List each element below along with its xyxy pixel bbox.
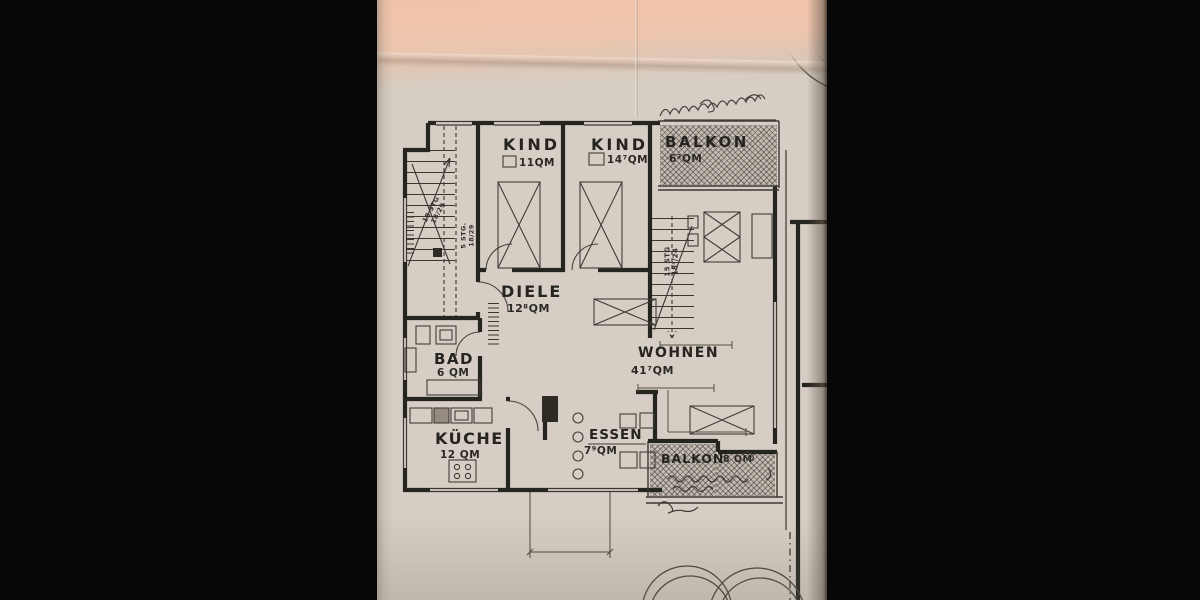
wardrobe-icon bbox=[589, 153, 604, 165]
room-area-essen: 7⁹QM bbox=[584, 445, 617, 457]
stair-annotation-interior: 15 STG 18³/24 bbox=[665, 239, 680, 285]
room-area-kueche: 12 QM bbox=[440, 449, 480, 461]
window-lines bbox=[404, 122, 787, 531]
room-label-kind-2: KIND bbox=[591, 135, 648, 154]
room-area-kind-2: 14⁷QM bbox=[607, 154, 648, 166]
room-label-balkon-bottom: BALKON bbox=[661, 451, 724, 466]
living-room-table-icon bbox=[688, 212, 772, 262]
stair-arrow-base bbox=[433, 248, 442, 257]
floor-plan-drawing bbox=[377, 0, 827, 600]
room-label-diele: DIELE bbox=[501, 282, 562, 301]
duct-block bbox=[542, 396, 558, 422]
room-area-balkon-bottom: 8 QM bbox=[723, 454, 752, 465]
sideboard-icon bbox=[594, 299, 656, 325]
dimension-lines bbox=[527, 492, 613, 558]
room-area-bad: 6 QM bbox=[437, 367, 469, 379]
bed-icon bbox=[498, 182, 540, 268]
photo-of-floor-plan: { "plan": { "drawing_type": "apartment f… bbox=[0, 0, 1200, 600]
room-label-wohnen: WOHNEN bbox=[638, 345, 719, 361]
plant-scribbles bbox=[660, 95, 776, 120]
room-area-wohnen: 41⁷QM bbox=[631, 364, 674, 377]
room-label-essen: ESSEN bbox=[589, 427, 643, 443]
blueprint-paper: KIND 11QM KIND 14⁷QM BALKON 6²QM DIELE 1… bbox=[377, 0, 827, 600]
room-label-balkon-top: BALKON bbox=[665, 133, 749, 151]
paper-crease-vertical bbox=[635, 0, 638, 118]
balcony-outlines bbox=[646, 121, 783, 503]
room-label-bad: BAD bbox=[434, 350, 474, 368]
room-area-kind-1: 11QM bbox=[519, 157, 555, 169]
room-area-diele: 12⁸QM bbox=[507, 302, 550, 315]
room-label-kueche: KÜCHE bbox=[435, 429, 504, 448]
bed-icon bbox=[580, 182, 622, 268]
stair-annotation-half-flight: 5 STG. 18/29 bbox=[461, 213, 476, 259]
room-area-balkon-top: 6²QM bbox=[669, 153, 702, 165]
wardrobe-icon bbox=[503, 156, 516, 167]
room-label-kind-1: KIND bbox=[503, 135, 560, 154]
sideboard-icon bbox=[690, 406, 754, 434]
